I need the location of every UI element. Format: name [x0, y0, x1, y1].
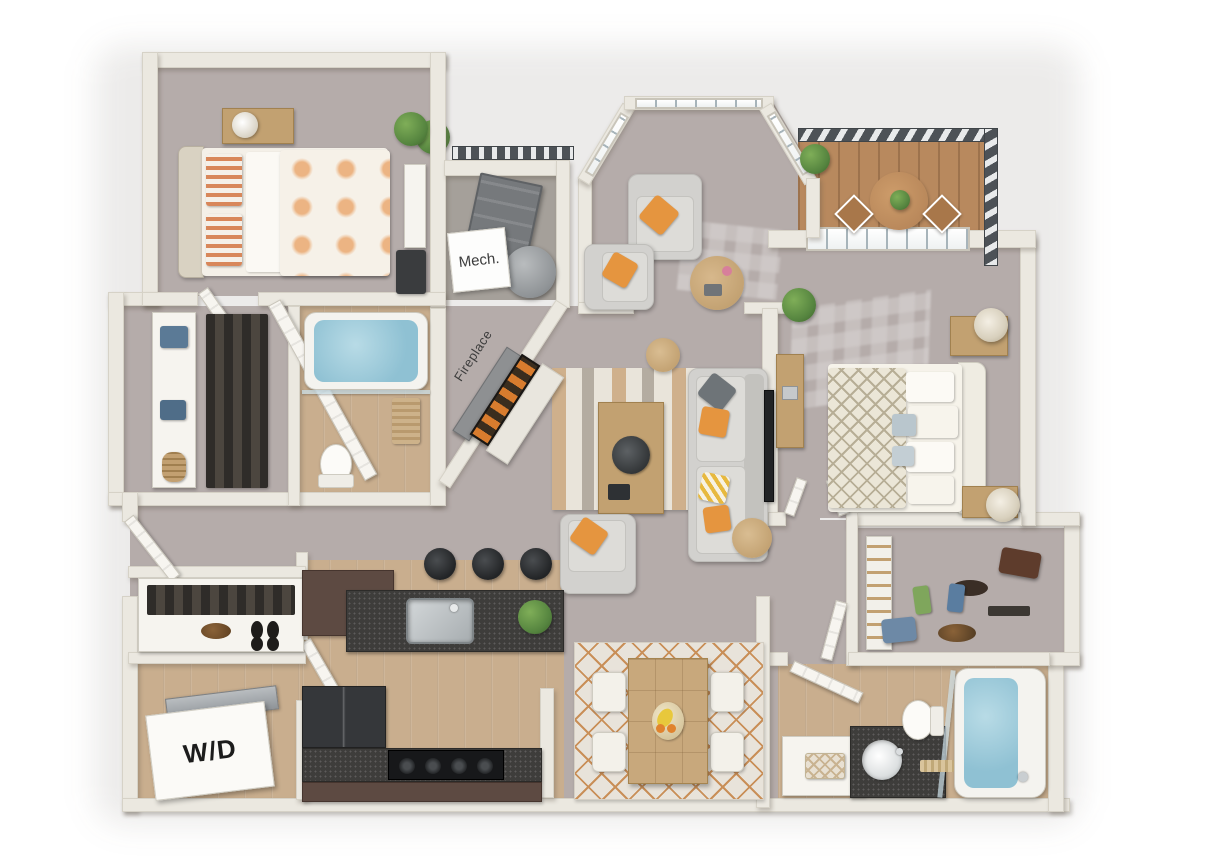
bag	[881, 616, 917, 643]
master-closet	[858, 528, 1064, 658]
desk	[404, 164, 426, 248]
bedroom-2	[158, 68, 430, 296]
orange-fruit	[667, 724, 676, 733]
laptop	[782, 386, 798, 400]
wicker-basket	[162, 452, 186, 482]
shoe	[938, 624, 976, 642]
wall	[142, 52, 158, 306]
shelf-items	[988, 606, 1030, 616]
striped-pillow	[206, 214, 242, 266]
storage-basket	[160, 400, 186, 420]
wall	[128, 566, 306, 578]
tablet	[704, 284, 722, 296]
wall	[1048, 652, 1064, 812]
diamond-duvet	[828, 368, 906, 508]
balcony-railing	[798, 128, 998, 142]
bathtub-water	[314, 320, 418, 382]
orange-pillow	[702, 504, 731, 533]
desk	[776, 354, 804, 448]
wall	[1064, 512, 1080, 666]
table-lamp	[232, 112, 258, 138]
round-coffee-table	[690, 256, 744, 310]
faucet	[896, 748, 903, 755]
wall	[1020, 236, 1036, 526]
mech-closet: Mech.	[444, 176, 564, 300]
storage-basket	[160, 326, 188, 348]
decor-tray	[612, 436, 650, 474]
bag	[998, 547, 1042, 580]
plant	[782, 288, 816, 322]
master-bedroom	[772, 246, 1022, 518]
towel-shelf	[392, 398, 420, 444]
storage-basket	[805, 753, 845, 779]
hanging-garment	[947, 583, 966, 613]
plant	[518, 600, 552, 634]
tub-faucet	[1018, 772, 1028, 782]
wall	[444, 160, 566, 176]
faucet	[450, 604, 458, 612]
laundry-closet: W/D	[136, 664, 302, 800]
bath-mat	[920, 760, 954, 772]
pillow	[906, 372, 954, 402]
patio-chair	[922, 194, 962, 234]
bar-stool	[424, 548, 456, 580]
bathroom-1	[296, 306, 436, 500]
floor-plan-3d-render: Mech.	[0, 0, 1214, 862]
hanging-coats	[147, 585, 295, 615]
chevron-pillow	[697, 471, 730, 504]
shoe	[251, 637, 263, 651]
refrigerator	[302, 686, 386, 748]
dresser	[396, 250, 426, 294]
wall	[128, 652, 306, 664]
vessel-sink	[862, 740, 902, 780]
hanging-garment	[912, 585, 932, 615]
burner	[425, 758, 441, 774]
shower-glass	[302, 390, 430, 394]
kitchen-cabinet	[302, 782, 542, 802]
wall-mounted-tv	[764, 390, 774, 502]
toilet-tank	[318, 474, 354, 488]
patio-plant	[890, 190, 910, 210]
mech-unit: Mech.	[447, 227, 511, 293]
dining-area	[566, 640, 772, 808]
coat-closet	[138, 578, 304, 652]
balcony	[798, 142, 996, 234]
kitchen	[302, 560, 564, 802]
dining-chair	[710, 732, 744, 772]
side-table	[646, 338, 680, 372]
hanging-clothes	[206, 314, 268, 488]
bed-headboard	[178, 146, 204, 278]
dining-chair	[592, 732, 626, 772]
stove	[388, 750, 504, 780]
bar-stool	[472, 548, 504, 580]
shoe	[267, 637, 279, 651]
plant	[394, 112, 428, 146]
porch-railing	[452, 146, 574, 160]
wall	[142, 52, 446, 68]
burner	[477, 758, 493, 774]
side-table	[732, 518, 772, 558]
washer-dryer-label: W/D	[182, 732, 239, 769]
table-lamp	[986, 488, 1020, 522]
dining-chair	[592, 672, 626, 712]
bathtub-water	[964, 678, 1018, 788]
table-lamp	[974, 308, 1008, 342]
orange-fruit	[656, 724, 665, 733]
water-heater	[504, 246, 556, 298]
kitchen-sink	[406, 598, 474, 644]
washer-dryer: W/D	[145, 701, 275, 801]
plant	[800, 144, 830, 174]
accent-pillow	[892, 414, 916, 436]
striped-pillow	[206, 154, 242, 206]
dining-chair	[710, 672, 744, 712]
master-bathroom	[778, 664, 1050, 800]
shoe	[201, 623, 231, 639]
burner	[451, 758, 467, 774]
accent-pillow	[892, 446, 914, 466]
mech-label: Mech.	[458, 249, 500, 270]
remote	[608, 484, 630, 500]
table-decor	[722, 266, 732, 276]
burner	[399, 758, 415, 774]
floral-duvet	[280, 150, 390, 276]
wall	[846, 512, 858, 666]
orange-pillow	[698, 406, 730, 438]
bar-stool	[520, 548, 552, 580]
patio-chair	[834, 194, 874, 234]
walk-in-closet-1	[124, 306, 294, 496]
toilet-tank	[930, 706, 944, 736]
pillow	[908, 476, 954, 504]
wall	[108, 292, 124, 506]
